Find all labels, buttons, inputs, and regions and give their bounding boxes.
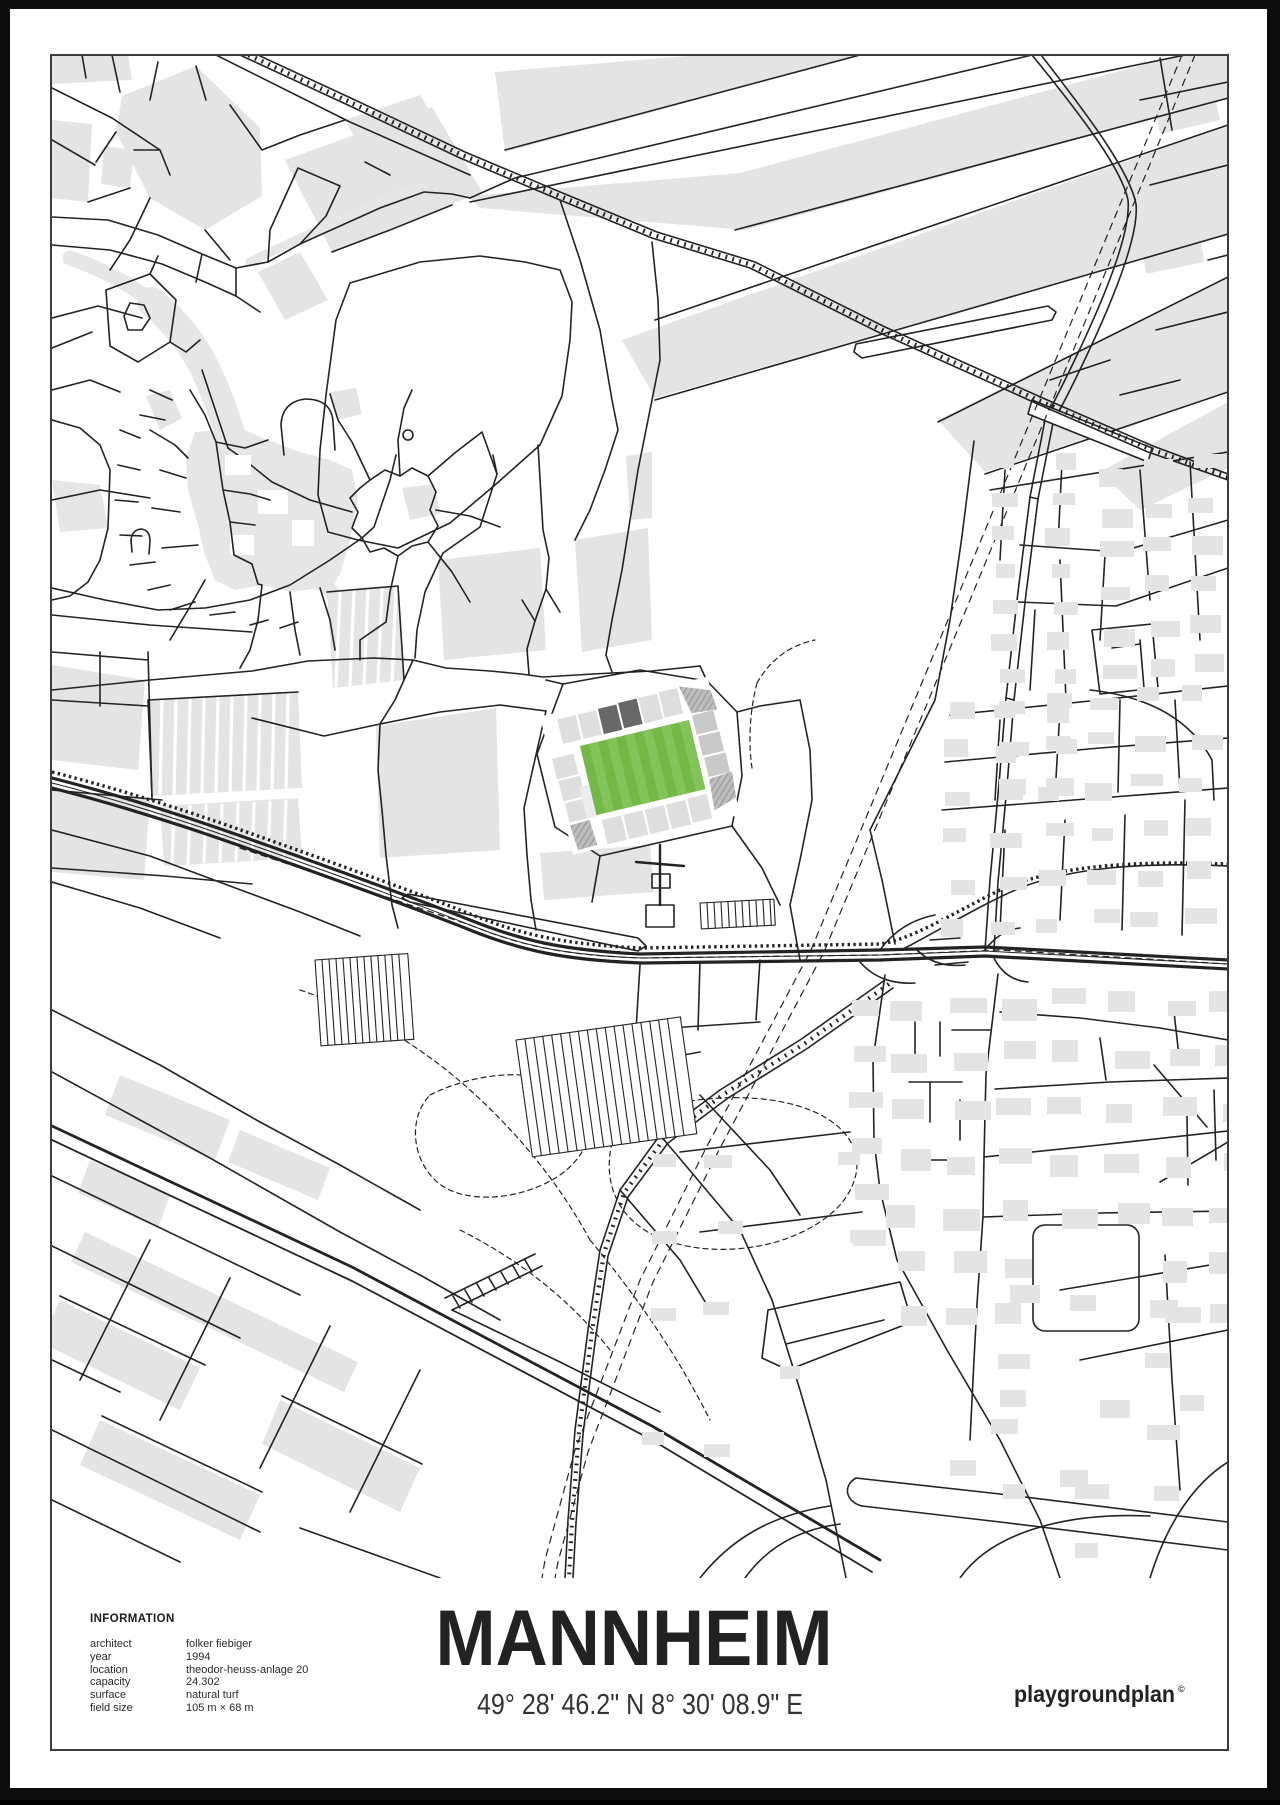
svg-text:49° 28' 46.2" N 8° 30' 08.9" E: 49° 28' 46.2" N 8° 30' 08.9" E	[477, 1689, 803, 1721]
svg-text:1994: 1994	[186, 1651, 210, 1663]
svg-text:natural turf: natural turf	[186, 1689, 240, 1701]
svg-text:location: location	[90, 1664, 128, 1676]
svg-text:playgroundplan: playgroundplan	[1014, 1681, 1175, 1707]
svg-text:architect: architect	[90, 1638, 132, 1650]
svg-text:surface: surface	[90, 1689, 126, 1701]
svg-text:24.302: 24.302	[186, 1676, 220, 1688]
svg-text:field size: field size	[90, 1702, 133, 1714]
svg-text:©: ©	[1178, 1684, 1185, 1694]
svg-text:folker fiebiger: folker fiebiger	[186, 1638, 252, 1650]
svg-text:capacity: capacity	[90, 1676, 131, 1688]
svg-text:105 m × 68 m: 105 m × 68 m	[186, 1702, 254, 1714]
svg-text:MANNHEIM: MANNHEIM	[436, 1593, 833, 1682]
svg-text:INFORMATION: INFORMATION	[90, 1613, 175, 1625]
svg-text:theodor-heuss-anlage 20: theodor-heuss-anlage 20	[186, 1664, 308, 1676]
svg-text:year: year	[90, 1651, 112, 1663]
